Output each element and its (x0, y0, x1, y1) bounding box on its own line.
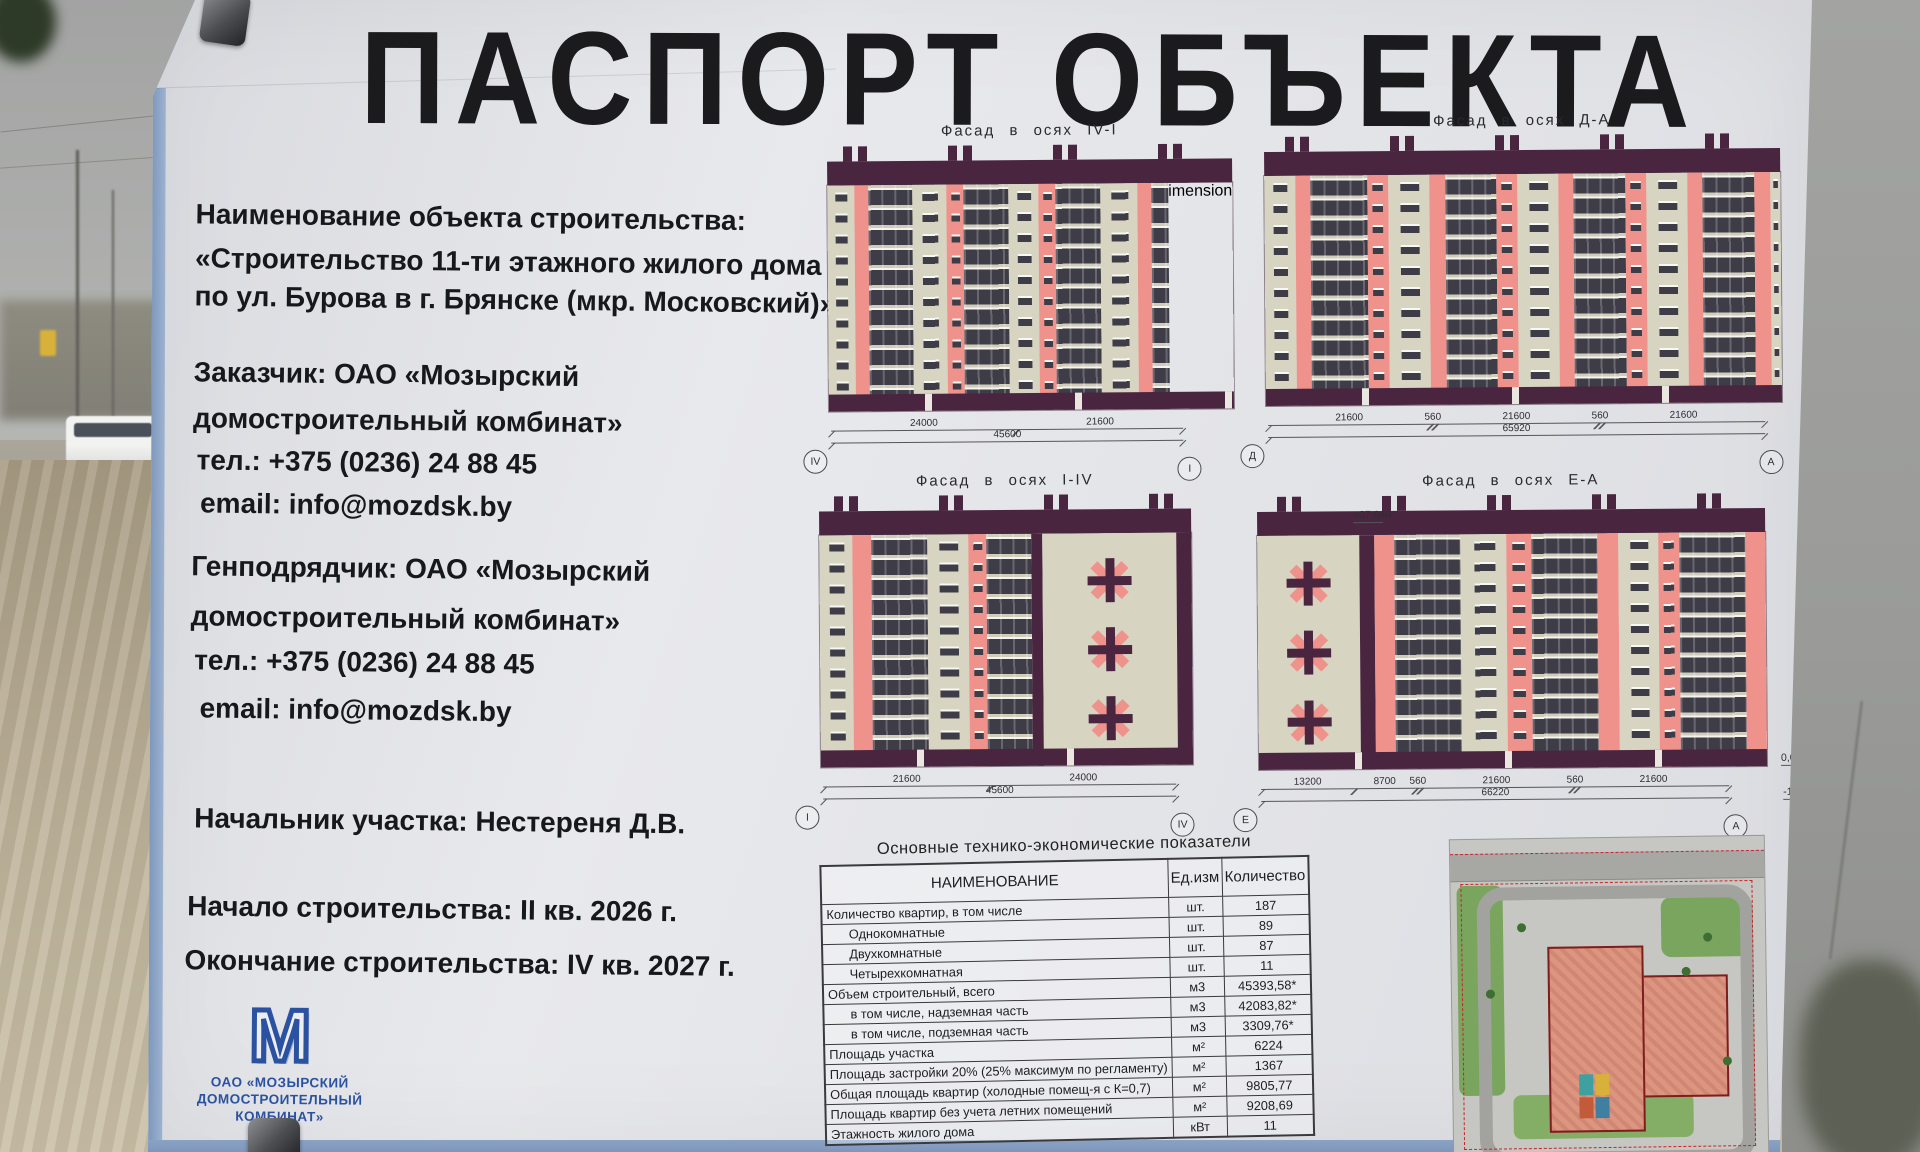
roof-band (827, 158, 1232, 185)
dimension-block: 216005602160056021600 65920 Д А (1266, 410, 1767, 438)
facade-label: Фасад в осях Д-А (1264, 110, 1780, 131)
col-qty-header: Количество (1221, 856, 1309, 896)
facade-drawing-d-a: Фасад в осях Д-А 216005602160056021600 6… (1264, 110, 1783, 438)
dimension-block: 2400021600 45600 IV I (829, 417, 1186, 444)
site-plan-building-wing (1638, 974, 1730, 1097)
dimension-total-value: 65920 (1503, 423, 1531, 434)
construction-start: Начало строительства: II кв. 2026 г. (187, 890, 677, 928)
building-elevation (819, 533, 1193, 768)
contractor-line1: Генподрядчик: ОАО «Мозырский (191, 550, 650, 588)
customer-line1: Заказчик: ОАО «Мозырский (194, 356, 580, 393)
dimension-block: 2160024000 45600 I IV (821, 773, 1178, 800)
site-plan-road (1450, 850, 1764, 882)
snowflake-ornament-icon (1089, 696, 1133, 740)
dimension-total-value: 45600 (993, 429, 1021, 440)
ornament-panel (1042, 533, 1178, 766)
site-plan-tree (1682, 967, 1691, 976)
dimension-total: 45600 (823, 785, 1176, 800)
facade-label: Фасад в осях I-IV (819, 471, 1191, 491)
object-name-line1: «Строительство 11-ти этажного жилого дом… (195, 242, 822, 282)
col-unit-header: Ед.изм (1168, 858, 1222, 898)
axis-left: Е (1233, 808, 1257, 832)
photo-background: ПАСПОРТ ОБЪЕКТА Наименование объекта стр… (0, 0, 1920, 1152)
dimension-block: 1320087005602160056021600 66220 Е А (1259, 774, 1732, 802)
building-elevation (1264, 172, 1782, 406)
customer-line2: домостроительный комбинат» (193, 402, 623, 439)
indicators-table: НАИМЕНОВАНИЕ Ед.изм Количество Количеств… (819, 855, 1315, 1146)
construction-finish: Окончание строительства: IV кв. 2027 г. (184, 944, 735, 983)
customer-email: email: info@mozdsk.by (200, 487, 512, 523)
power-pole (76, 150, 79, 440)
roof-band (819, 509, 1191, 536)
bushes (1800, 960, 1920, 1152)
dimension-total: 65920 (1268, 422, 1765, 438)
snowflake-ornament-icon (1287, 700, 1331, 744)
elevation-mark-top: +37,040 (1353, 509, 1391, 523)
site-plan-playground (1579, 1074, 1610, 1118)
snowflake-ornament-icon (1286, 561, 1330, 605)
object-name-line2: по ул. Бурова в г. Брянске (мкр. Московс… (194, 280, 835, 320)
facade-drawing-i-iv: Фасад в осях I-IV 2160024000 45600 (819, 471, 1194, 800)
dimension-total-value: 66220 (1481, 787, 1509, 798)
axis-right: А (1724, 814, 1748, 838)
facade-drawing-iv-i: Фасад в осях IV-I imension 2400021600 45… (827, 120, 1235, 443)
axis-left: I (795, 805, 819, 829)
object-name-label: Наименование объекта строительства: (195, 198, 746, 237)
facade-label: Фасад в осях IV-I (827, 120, 1232, 140)
snowflake-ornament-icon (1087, 558, 1131, 602)
info-column: Наименование объекта строительства: «Стр… (196, 182, 796, 189)
building-elevation (1257, 532, 1767, 770)
site-plan-tree (1723, 1056, 1732, 1065)
tec-table-body: Количество квартир, в том числешт.187Одн… (821, 894, 1314, 1145)
axis-left: IV (803, 450, 827, 474)
axis-left: Д (1240, 444, 1264, 468)
contractor-email: email: info@mozdsk.by (199, 692, 511, 728)
dimension-total: 66220 (1261, 786, 1730, 802)
mounting-clamp-top (199, 0, 252, 47)
building-elevation: imension (827, 182, 1234, 411)
passport-board: ПАСПОРТ ОБЪЕКТА Наименование объекта стр… (140, 0, 1812, 1152)
dimension-total: 45600 (831, 429, 1183, 444)
ornament-panel (1257, 535, 1360, 770)
dimension-total-value: 45600 (986, 785, 1014, 796)
contractor-line2: домостроительный комбинат» (191, 600, 621, 637)
power-pole (112, 190, 114, 440)
customer-phone: тел.: +375 (0236) 24 88 45 (196, 444, 537, 480)
site-plan-tree (1703, 933, 1712, 942)
logo-monogram-icon: М (170, 999, 391, 1073)
facade-drawing-e-a: Фасад в осях Е-А +37,040 (1257, 470, 1768, 802)
company-logo: М ОАО «МОЗЫРСКИЙ ДОМОСТРОИТЕЛЬНЫЙ КОМБИН… (169, 999, 390, 1126)
site-manager: Начальник участка: Нестереня Д.В. (194, 802, 685, 840)
snowflake-ornament-icon (1088, 627, 1132, 671)
site-plan (1450, 836, 1768, 1152)
site-plan-tree (1517, 923, 1526, 932)
snowflake-ornament-icon (1287, 630, 1331, 674)
yellow-sign (40, 330, 56, 356)
facade-label: Фасад в осях Е-А (1257, 470, 1765, 491)
mounting-clamp-bottom (248, 1118, 300, 1152)
site-plan-tree (1486, 990, 1495, 999)
contractor-phone: тел.: +375 (0236) 24 88 45 (194, 644, 535, 680)
indicators-section: Основные технико-экономические показател… (819, 831, 1315, 1146)
